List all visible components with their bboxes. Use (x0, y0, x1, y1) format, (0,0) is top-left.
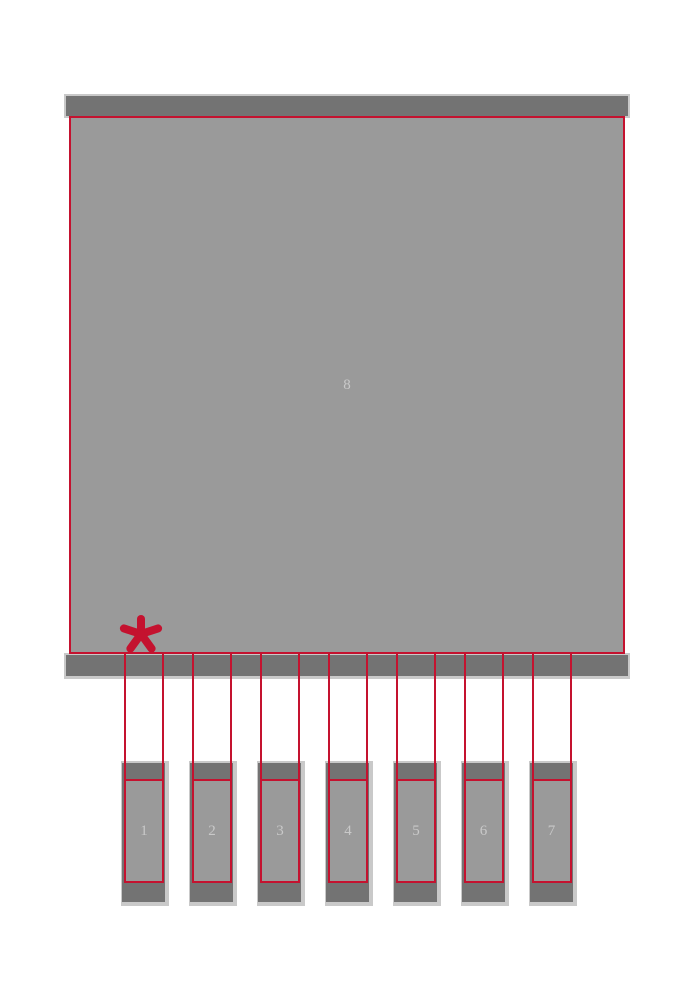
pin-5: 5 (393, 653, 441, 906)
pin-number: 2 (208, 824, 216, 839)
pin-7: 7 (529, 653, 577, 906)
pin-lead-outline: 1 (124, 779, 164, 883)
pin-lead-outline: 5 (396, 779, 436, 883)
lead-edge-line (366, 653, 368, 781)
pin1-marker-asterisk-icon (118, 614, 164, 660)
component-body-outline: 8 (69, 116, 625, 654)
lead-edge-line (532, 653, 534, 781)
pin-lead-outline: 6 (464, 779, 504, 883)
lead-edge-line (260, 653, 262, 781)
lead-edge-line (230, 653, 232, 781)
footprint-diagram: 8 1 2 3 4 (0, 0, 694, 1000)
lead-edge-line (124, 653, 126, 781)
lead-edge-line (502, 653, 504, 781)
lead-edge-line (434, 653, 436, 781)
lead-edge-line (298, 653, 300, 781)
pin-1: 1 (121, 653, 169, 906)
pin-4: 4 (325, 653, 373, 906)
thermal-pad-number: 8 (343, 378, 351, 393)
pin-3: 3 (257, 653, 305, 906)
pin-lead-outline: 4 (328, 779, 368, 883)
pin-6: 6 (461, 653, 509, 906)
lead-edge-line (192, 653, 194, 781)
lead-edge-line (570, 653, 572, 781)
pin-number: 3 (276, 824, 284, 839)
pin-number: 7 (548, 824, 556, 839)
pin-number: 1 (140, 824, 148, 839)
pin-lead-outline: 2 (192, 779, 232, 883)
pin-lead-outline: 3 (260, 779, 300, 883)
pin-lead-outline: 7 (532, 779, 572, 883)
pin-2: 2 (189, 653, 237, 906)
lead-edge-line (162, 653, 164, 781)
tab-pad-top-bar (66, 96, 628, 116)
lead-edge-line (464, 653, 466, 781)
pin-number: 6 (480, 824, 488, 839)
pin-number: 5 (412, 824, 420, 839)
lead-edge-line (328, 653, 330, 781)
pin-number: 4 (344, 824, 352, 839)
lead-edge-line (396, 653, 398, 781)
